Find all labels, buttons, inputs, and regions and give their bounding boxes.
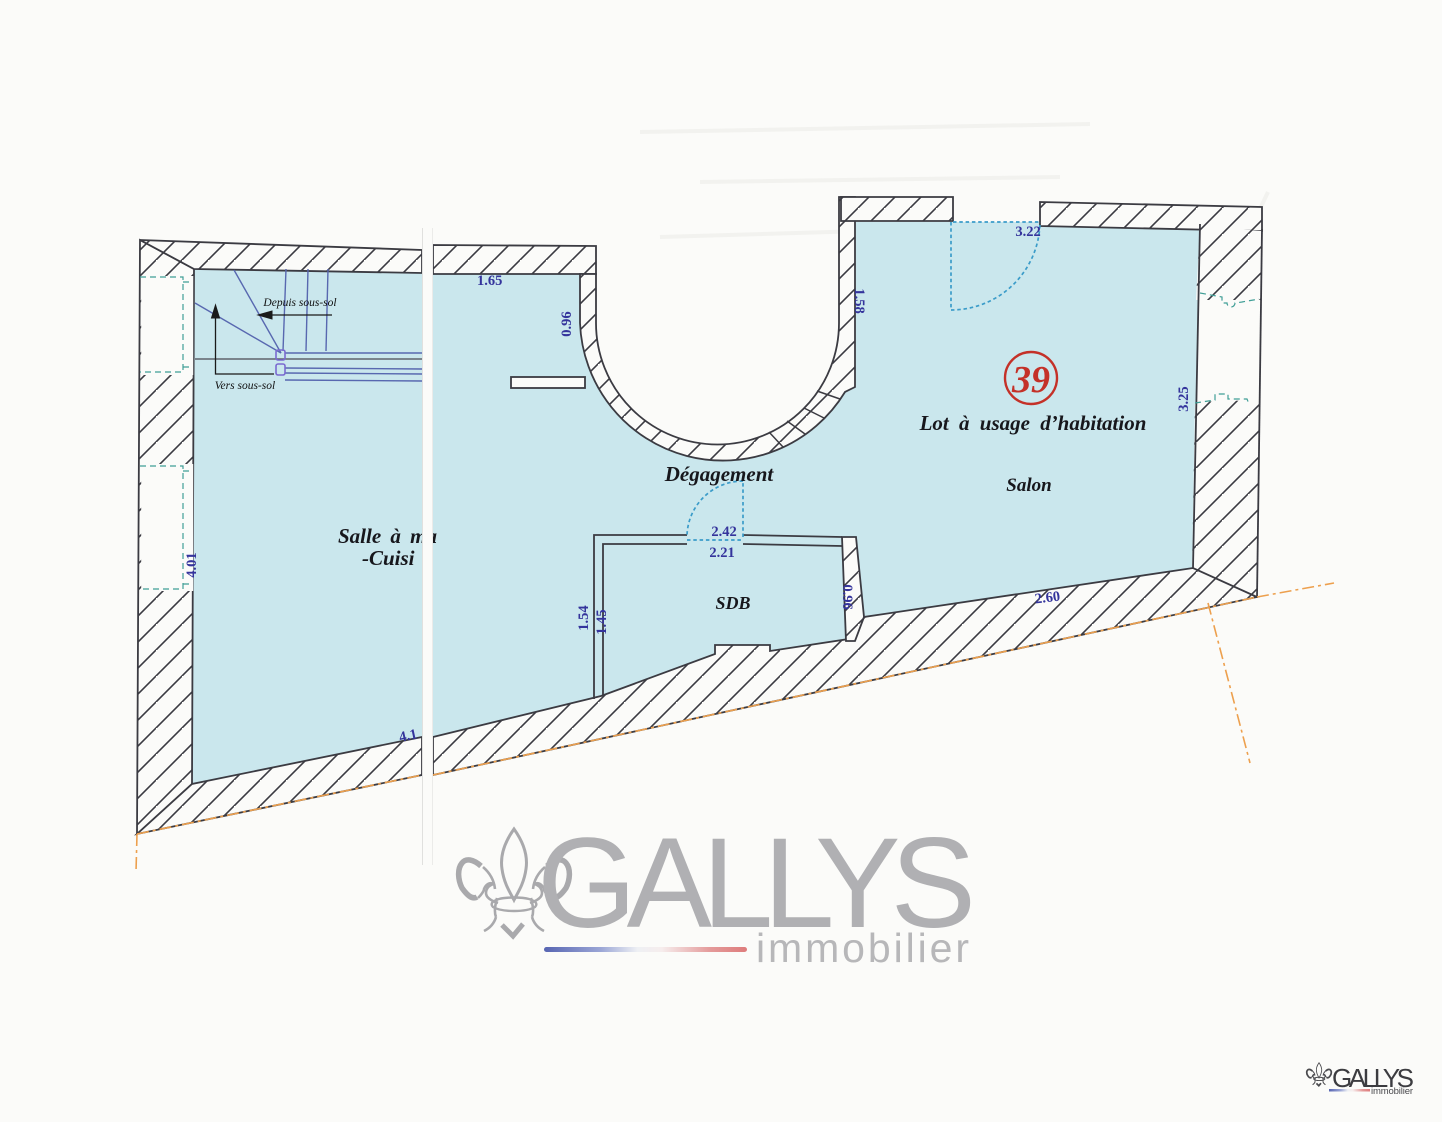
- svg-text:Vers sous-sol: Vers sous-sol: [215, 380, 275, 392]
- svg-text:-Cuisi: -Cuisi: [362, 546, 415, 570]
- svg-text:3.25: 3.25: [1176, 386, 1192, 411]
- svg-text:immobilier: immobilier: [756, 925, 969, 971]
- svg-text:4.01: 4.01: [184, 552, 200, 577]
- svg-text:2.21: 2.21: [709, 545, 734, 561]
- svg-text:Lot à usage d’habitation: Lot à usage d’habitation: [919, 411, 1147, 435]
- svg-text:Salon: Salon: [1006, 475, 1051, 496]
- svg-text:1.54: 1.54: [576, 605, 592, 630]
- svg-text:1.58: 1.58: [851, 288, 867, 313]
- svg-text:1.65: 1.65: [477, 273, 502, 289]
- svg-text:0.96: 0.96: [559, 311, 575, 336]
- svg-text:3.22: 3.22: [1015, 224, 1040, 240]
- svg-text:1.45: 1.45: [594, 609, 610, 634]
- svg-text:immobilier: immobilier: [1371, 1086, 1413, 1097]
- svg-text:39: 39: [1011, 359, 1050, 401]
- svg-text:2.42: 2.42: [711, 524, 736, 540]
- svg-text:0.96: 0.96: [839, 584, 855, 609]
- svg-text:Dégagement: Dégagement: [664, 462, 775, 486]
- svg-text:Depuis sous-sol: Depuis sous-sol: [262, 297, 336, 309]
- svg-text:SDB: SDB: [715, 593, 750, 613]
- svg-text:2.60: 2.60: [1034, 589, 1061, 608]
